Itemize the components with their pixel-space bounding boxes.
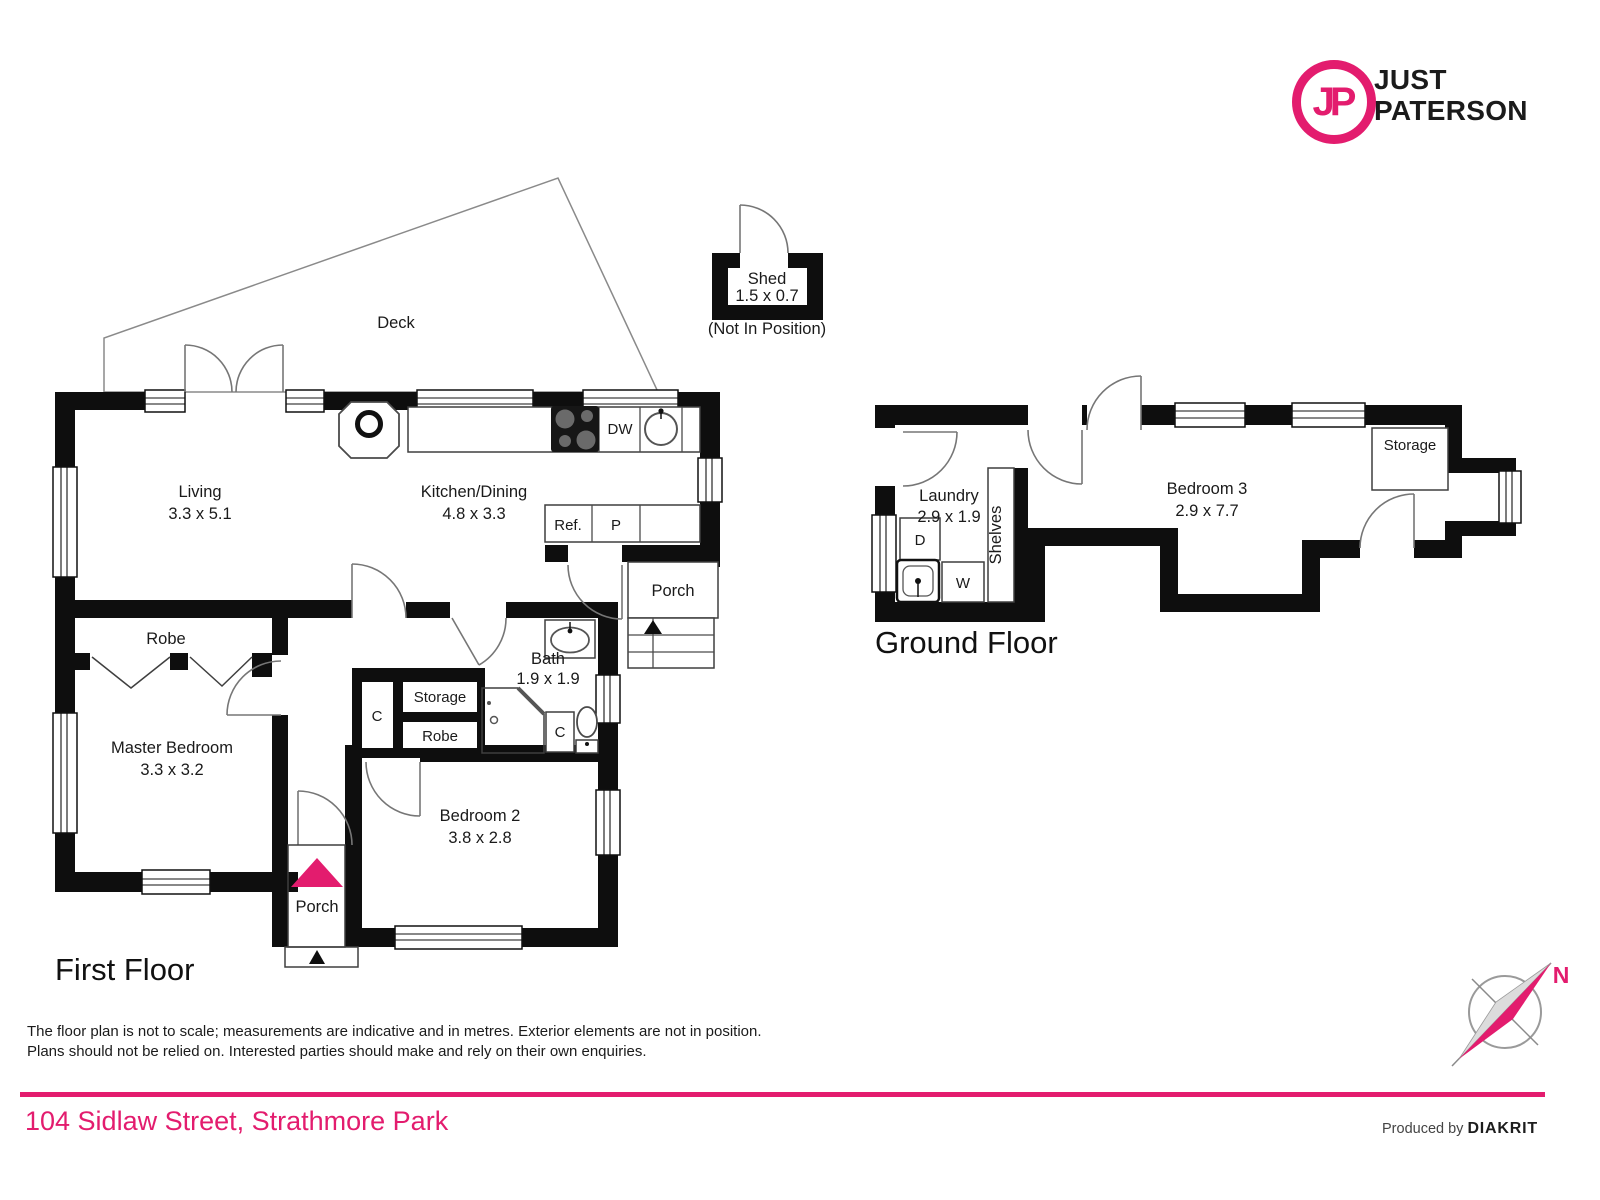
window	[142, 870, 210, 894]
deck-label: Deck	[377, 314, 415, 332]
living-dims: 3.3 x 5.1	[168, 505, 231, 523]
bath-cupboard: C	[546, 712, 574, 752]
shower-icon	[482, 688, 544, 753]
first-floor-plan: Deck	[53, 178, 826, 987]
washer-label: W	[956, 575, 971, 592]
master-robe-label: Robe	[146, 630, 185, 648]
hall-storage-label: Storage	[414, 689, 467, 706]
side-porch-label: Porch	[651, 582, 694, 600]
dryer-label: D	[915, 532, 926, 549]
shed: Shed 1.5 x 0.7 (Not In Position)	[708, 205, 826, 338]
washer-box: W	[942, 562, 984, 602]
front-porch-door	[298, 791, 352, 845]
produced-by-text: Produced by	[1382, 1121, 1463, 1137]
ground-floor-room-labels: Laundry 2.9 x 1.9 Bedroom 3 2.9 x 7.7	[917, 480, 1247, 526]
cooktop-icon	[551, 406, 599, 452]
hall-robe-label: Robe	[422, 728, 458, 745]
disclaimer: The floor plan is not to scale; measurem…	[27, 1022, 762, 1062]
window	[286, 390, 324, 412]
bedroom2-door	[366, 762, 420, 816]
window	[596, 675, 620, 723]
floor-plan-page: JP JUST PATERSON Deck	[0, 0, 1600, 1200]
window	[53, 713, 77, 833]
bedroom3-label: Bedroom 3	[1167, 480, 1248, 498]
laundry-label: Laundry	[919, 487, 979, 505]
shelves-label: Shelves	[987, 506, 1005, 565]
shed-note: (Not In Position)	[708, 320, 826, 338]
fridge-pantry-bench: Ref. P	[545, 505, 700, 542]
produced-by: Produced by DIAKRIT	[1382, 1120, 1538, 1138]
deck-outline: Deck	[104, 178, 658, 392]
bath-cupboard-label: C	[555, 724, 566, 741]
living-label: Living	[178, 483, 221, 501]
kitchen-dims: 4.8 x 3.3	[442, 505, 505, 523]
disclaimer-line2: Plans should not be relied on. Intereste…	[27, 1042, 762, 1062]
ground-floor-plan: D W Shelves Storage Laundry	[872, 376, 1521, 660]
ground-storage-box: Storage	[1372, 428, 1448, 490]
window	[1499, 471, 1521, 523]
shed-dims: 1.5 x 0.7	[735, 287, 798, 305]
window	[395, 926, 522, 949]
bedroom3-rear-door	[1360, 494, 1414, 548]
ground-storage-label: Storage	[1384, 437, 1437, 454]
bedroom3-dims: 2.9 x 7.7	[1175, 502, 1238, 520]
bath-door	[452, 618, 506, 665]
accent-divider	[20, 1092, 1545, 1097]
kitchen-label: Kitchen/Dining	[421, 483, 527, 501]
entry-arrow-icon	[291, 858, 343, 887]
hall-door	[352, 564, 406, 618]
stairs-icon	[628, 618, 714, 668]
cupboard-left-label: C	[372, 708, 383, 725]
shed-label: Shed	[748, 270, 787, 288]
window	[596, 790, 620, 855]
bedroom2-label: Bedroom 2	[440, 807, 521, 825]
window	[53, 467, 77, 577]
laundry-entry-door	[903, 432, 957, 486]
disclaimer-line1: The floor plan is not to scale; measurem…	[27, 1022, 762, 1042]
window	[698, 458, 722, 502]
bath-dims: 1.9 x 1.9	[516, 670, 579, 688]
window	[1292, 403, 1365, 427]
toilet-icon	[576, 707, 598, 753]
fridge-label: Ref.	[554, 517, 582, 534]
floor-plan-drawing: Deck	[0, 0, 1600, 1200]
side-porch: Porch	[628, 562, 718, 618]
shelves-box: Shelves	[987, 468, 1014, 602]
master-dims: 3.3 x 3.2	[140, 761, 203, 779]
ground-floor-title: Ground Floor	[875, 625, 1058, 660]
pantry-label: P	[611, 517, 621, 534]
window	[872, 515, 896, 592]
front-porch-label: Porch	[295, 898, 338, 916]
laundry-tub-icon	[897, 560, 939, 602]
dishwasher-label: DW	[608, 421, 634, 438]
bedroom3-inner-door	[1028, 430, 1082, 484]
bath-label: Bath	[531, 650, 565, 668]
producer-name: DIAKRIT	[1467, 1120, 1537, 1137]
master-label: Master Bedroom	[111, 739, 233, 757]
laundry-dims: 2.9 x 1.9	[917, 508, 980, 526]
wood-burner-icon	[339, 402, 399, 458]
first-floor-title: First Floor	[55, 952, 195, 987]
window	[145, 390, 185, 412]
compass-icon: N	[1452, 962, 1569, 1066]
bedroom2-dims: 3.8 x 2.8	[448, 829, 511, 847]
window	[1175, 403, 1245, 427]
property-address: 104 Sidlaw Street, Strathmore Park	[25, 1106, 448, 1137]
north-label: N	[1553, 962, 1570, 988]
bedroom3-outer-door	[1087, 376, 1141, 430]
